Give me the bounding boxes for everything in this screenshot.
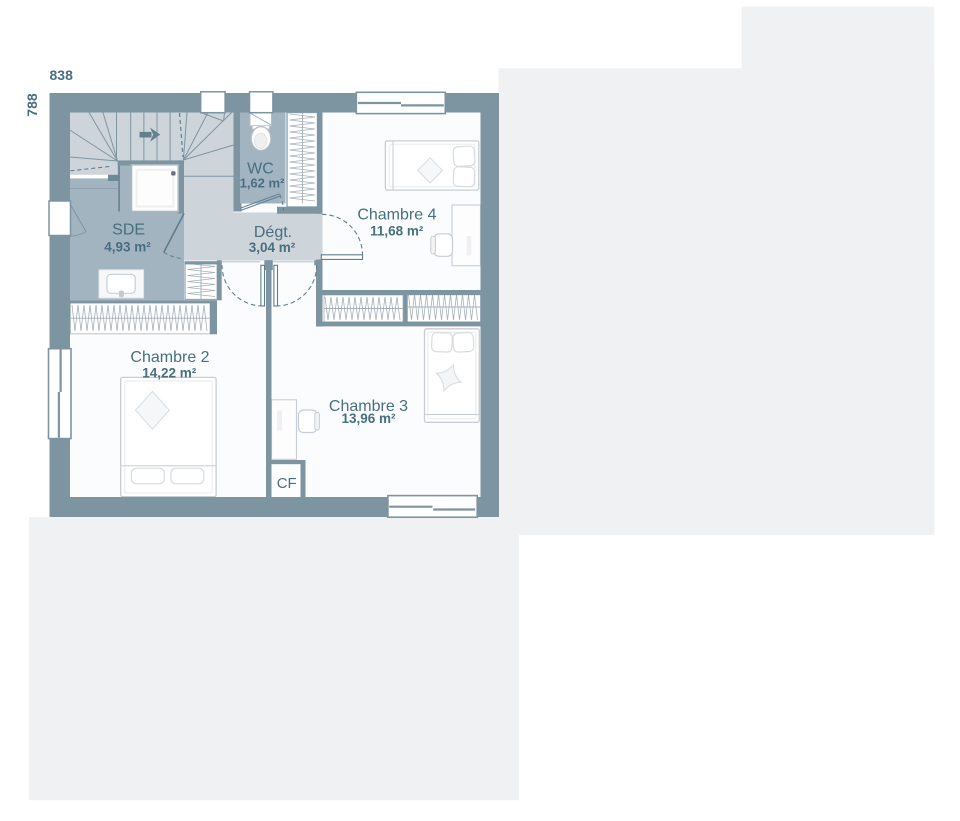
svg-text:838: 838 xyxy=(50,67,74,83)
svg-text:SDE: SDE xyxy=(112,222,145,239)
svg-text:14,22 m²: 14,22 m² xyxy=(142,366,197,381)
svg-text:3,04 m²: 3,04 m² xyxy=(249,240,296,255)
svg-text:Dégt.: Dégt. xyxy=(254,224,292,241)
svg-text:1,62 m²: 1,62 m² xyxy=(240,176,285,191)
svg-text:Chambre 2: Chambre 2 xyxy=(130,349,209,366)
svg-text:4,93 m²: 4,93 m² xyxy=(104,240,151,255)
svg-text:Chambre 4: Chambre 4 xyxy=(357,207,436,224)
svg-text:788: 788 xyxy=(24,93,40,117)
svg-text:CF: CF xyxy=(277,475,297,492)
svg-text:13,96 m²: 13,96 m² xyxy=(341,411,396,426)
svg-text:11,68 m²: 11,68 m² xyxy=(370,223,424,238)
